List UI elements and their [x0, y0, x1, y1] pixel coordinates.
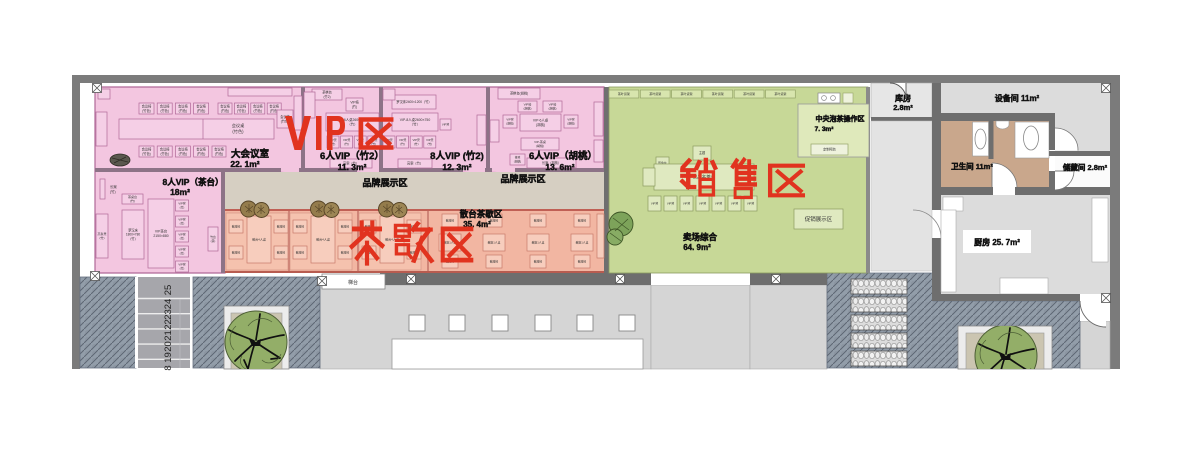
svg-text:(茶): (茶) [211, 239, 216, 243]
svg-text:散座椅: 散座椅 [446, 219, 455, 223]
svg-text:(胡桃): (胡桃) [514, 159, 522, 163]
svg-text:定制吧台: 定制吧台 [823, 147, 836, 152]
svg-text:VIP凳: VIP凳 [715, 202, 723, 206]
svg-text:散台茶歇区: 散台茶歇区 [460, 209, 503, 219]
svg-text:VIP凳: VIP凳 [699, 202, 707, 206]
svg-text:(胡桃): (胡桃) [536, 122, 545, 127]
svg-text:散台4人桌: 散台4人桌 [252, 237, 266, 242]
svg-text:中央泡茶操作区: 中央泡茶操作区 [816, 114, 865, 123]
svg-text:(竹): (竹) [352, 104, 357, 109]
svg-text:64. 9m²: 64. 9m² [683, 243, 711, 252]
svg-text:VIP茶台: VIP茶台 [155, 229, 168, 234]
svg-text:VIP-8人桌2600×750: VIP-8人桌2600×750 [400, 117, 431, 122]
svg-text:散座椅: 散座椅 [341, 251, 350, 255]
svg-text:(竹): (竹) [414, 142, 419, 146]
svg-text:散座椅: 散座椅 [296, 225, 305, 229]
svg-text:茶叶货架: 茶叶货架 [680, 91, 692, 96]
svg-text:散座椅: 散座椅 [490, 260, 499, 264]
svg-text:长案: 长案 [110, 184, 117, 189]
svg-text:(竹色): (竹色) [179, 108, 188, 113]
svg-text:(竹色): (竹色) [221, 108, 230, 113]
svg-text:散座椅: 散座椅 [534, 219, 543, 223]
svg-text:(竹色): (竹色) [254, 108, 263, 113]
svg-text:VIP凳: VIP凳 [731, 202, 739, 206]
svg-text:梯台: 梯台 [348, 279, 358, 286]
svg-text:(竹): (竹) [110, 189, 116, 194]
svg-text:卖场综合: 卖场综合 [683, 232, 718, 242]
svg-text:（竹）: （竹） [128, 236, 138, 241]
svg-text:VIP凳: VIP凳 [683, 202, 691, 206]
svg-text:(竹色): (竹色) [197, 108, 206, 113]
svg-text:11. 3m²: 11. 3m² [338, 162, 367, 172]
svg-text:7. 3m²: 7. 3m² [815, 126, 835, 133]
svg-text:(胡桃): (胡桃) [524, 106, 532, 111]
svg-text:(竹): (竹) [180, 205, 185, 209]
svg-text:8人VIP (竹2): 8人VIP (竹2) [430, 150, 484, 162]
svg-text:(竹色): (竹色) [160, 108, 169, 113]
svg-text:高案（竹）: 高案（竹） [407, 161, 423, 166]
svg-text:散座椅: 散座椅 [341, 225, 350, 229]
svg-text:2.8m²: 2.8m² [893, 103, 913, 112]
svg-text:厨房 25. 7m²: 厨房 25. 7m² [974, 237, 1020, 247]
svg-text:8: 8 [163, 365, 174, 370]
svg-text:20: 20 [163, 341, 174, 352]
svg-text:(竹): (竹) [344, 142, 349, 146]
svg-text:散座椅: 散座椅 [277, 251, 286, 255]
svg-text:散台4人桌: 散台4人桌 [316, 237, 330, 242]
svg-text:(竹色): (竹色) [232, 128, 244, 135]
svg-text:(竹色): (竹色) [142, 108, 151, 113]
svg-text:(竹): (竹) [180, 266, 185, 270]
svg-text:罗汉床2400×1200（竹）: 罗汉床2400×1200（竹） [396, 99, 431, 104]
svg-text:品牌展示区: 品牌展示区 [500, 173, 545, 184]
svg-text:库房: 库房 [895, 93, 911, 103]
svg-text:储藏间 2.8m²: 储藏间 2.8m² [1063, 162, 1108, 172]
svg-text:散座椅: 散座椅 [578, 260, 587, 264]
svg-text:VIP凳: VIP凳 [747, 202, 755, 206]
svg-text:散座1人桌: 散座1人桌 [532, 241, 545, 245]
svg-text:（竹）: （竹） [347, 121, 357, 126]
svg-text:设备间 11m²: 设备间 11m² [995, 93, 1040, 103]
svg-text:(竹色): (竹色) [179, 151, 188, 156]
svg-text:VIP凳: VIP凳 [651, 202, 659, 206]
svg-text:(胡桃): (胡桃) [567, 121, 575, 125]
svg-text:主题: 主题 [699, 150, 706, 155]
svg-text:19: 19 [163, 352, 174, 363]
svg-text:会议桌: 会议桌 [232, 122, 245, 129]
svg-text:茶叶货架: 茶叶货架 [649, 91, 661, 96]
svg-text:品牌展示区: 品牌展示区 [362, 177, 407, 188]
svg-text:(竹色): (竹色) [197, 151, 206, 156]
svg-text:(竹色): (竹色) [215, 151, 224, 156]
svg-text:VIP凳: VIP凳 [442, 123, 450, 127]
svg-text:散座1人桌: 散座1人桌 [576, 241, 589, 245]
svg-text:茶叶货架: 茶叶货架 [618, 91, 630, 96]
svg-text:VIP凳: VIP凳 [667, 202, 675, 206]
svg-text:(竹): (竹) [180, 236, 185, 240]
svg-text:(竹): (竹) [130, 198, 135, 203]
svg-text:(竹色): (竹色) [237, 108, 246, 113]
svg-text:22. 1m²: 22. 1m² [230, 159, 259, 169]
svg-text:散座椅: 散座椅 [296, 251, 305, 255]
svg-text:卫生间 11m²: 卫生间 11m² [951, 161, 993, 171]
svg-text:12. 3m²: 12. 3m² [442, 162, 471, 172]
svg-text:散座椅: 散座椅 [534, 260, 543, 264]
svg-text:(竹): (竹) [180, 221, 185, 225]
svg-text:促销展示区: 促销展示区 [805, 215, 833, 223]
svg-text:(竹): (竹) [400, 142, 405, 146]
svg-text:散座椅: 散座椅 [232, 225, 241, 229]
svg-text:(胡桃): (胡桃) [506, 121, 514, 125]
svg-text:(胡桃): (胡桃) [536, 143, 544, 148]
svg-text:散座椅: 散座椅 [277, 225, 286, 229]
svg-text:(竹): (竹) [427, 142, 432, 146]
svg-text:（竹）: （竹） [410, 121, 420, 126]
svg-text:(竹): (竹) [180, 251, 185, 255]
svg-text:VIP-6人桌: VIP-6人桌 [533, 118, 549, 123]
svg-text:(胡桃): (胡桃) [549, 106, 557, 111]
svg-text:2150×880: 2150×880 [153, 234, 168, 238]
svg-text:(竹色): (竹色) [160, 151, 169, 156]
svg-text:茶叶货架: 茶叶货架 [712, 91, 724, 96]
svg-text:22: 22 [163, 319, 174, 330]
svg-text:8人VIP（茶台）: 8人VIP（茶台） [163, 177, 224, 187]
svg-text:(竹色): (竹色) [142, 151, 151, 156]
svg-text:茶棋台(胡桃): 茶棋台(胡桃) [510, 91, 528, 96]
svg-text:21: 21 [163, 330, 174, 341]
svg-text:25: 25 [163, 285, 174, 296]
svg-text:散座椅: 散座椅 [232, 251, 241, 255]
svg-text:(竹2): (竹2) [323, 94, 330, 99]
svg-text:散座椅: 散座椅 [578, 219, 587, 223]
svg-text:散座椅: 散座椅 [490, 219, 499, 223]
svg-text:6人VIP（竹2）: 6人VIP（竹2） [320, 150, 384, 162]
svg-text:茶叶货架: 茶叶货架 [774, 91, 786, 96]
svg-text:13. 6m²: 13. 6m² [545, 162, 574, 172]
svg-text:23: 23 [163, 309, 174, 320]
svg-text:18m²: 18m² [170, 187, 190, 197]
svg-text:散座1人桌: 散座1人桌 [488, 241, 501, 245]
svg-text:(竹): (竹) [100, 235, 105, 240]
svg-text:茶叶货架: 茶叶货架 [743, 91, 755, 96]
svg-text:6人VIP（胡桃）: 6人VIP（胡桃） [529, 150, 597, 162]
svg-text:24: 24 [163, 299, 174, 310]
